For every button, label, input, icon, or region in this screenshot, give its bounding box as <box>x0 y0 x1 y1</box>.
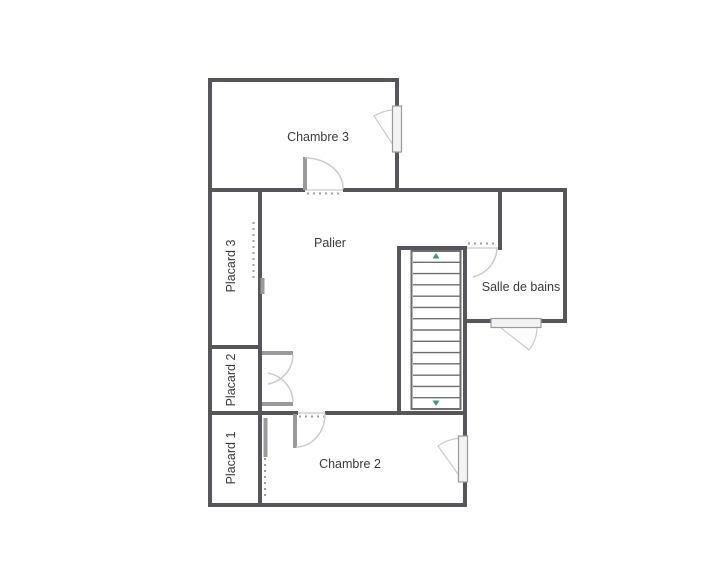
wall-left-exterior <box>208 78 212 507</box>
wall-bathroom-bottom-left <box>463 319 492 323</box>
room-label-palier: Palier <box>314 236 346 250</box>
wall-chambre2-top-right <box>325 411 467 415</box>
bathroom-window <box>491 319 541 328</box>
chambre3-door-arc <box>305 158 343 189</box>
wall-middle-horizontal-left <box>208 188 305 192</box>
floor-plan: Chambre 3 Palier Placard 3 Placard 2 Pla… <box>0 0 718 567</box>
chambre3-window <box>393 106 402 152</box>
bathroom-door-arc <box>473 248 497 277</box>
placard3-door-panel <box>261 278 265 294</box>
wall-palier-bathroom-separator <box>498 188 502 250</box>
chambre2-window <box>459 436 468 482</box>
wall-chambre3-right-lower <box>395 152 399 192</box>
floor-plan-drawing <box>0 0 718 567</box>
wall-mid-vertical-upper <box>463 246 467 437</box>
room-label-placard-2: Placard 2 <box>224 354 238 407</box>
wall-chambre3-top <box>208 78 399 82</box>
room-label-chambre-3: Chambre 3 <box>287 130 349 144</box>
room-label-placard-1: Placard 1 <box>224 432 238 485</box>
wall-middle-horizontal-right <box>343 188 567 192</box>
wall-stair-left <box>397 246 401 415</box>
wall-placard3-placard2-separator <box>208 345 262 349</box>
chambre2-door-leaf <box>293 414 297 448</box>
wall-bottom-exterior <box>208 503 467 507</box>
wall-stair-top <box>397 246 467 250</box>
placard1-door-panel <box>264 418 268 457</box>
wall-bathroom-bottom-right <box>540 319 567 323</box>
wall-chambre3-right-upper <box>395 78 399 107</box>
placard2-door-arc-bottom <box>268 373 293 402</box>
placard2-door-leaf-top <box>262 351 293 355</box>
placard2-door-leaf-bottom <box>262 402 293 406</box>
room-label-salle-de-bains: Salle de bains <box>482 280 561 294</box>
room-label-placard-3: Placard 3 <box>224 240 238 293</box>
wall-chambre2-top-left <box>208 411 298 415</box>
chambre2-door-arc <box>296 414 325 447</box>
placard2-door-arc-top <box>268 355 293 384</box>
wall-right-exterior <box>563 188 567 323</box>
room-label-chambre-2: Chambre 2 <box>319 457 381 471</box>
staircase <box>412 251 461 409</box>
bathroom-window-swing <box>500 327 537 350</box>
chambre3-door-leaf <box>303 157 307 190</box>
